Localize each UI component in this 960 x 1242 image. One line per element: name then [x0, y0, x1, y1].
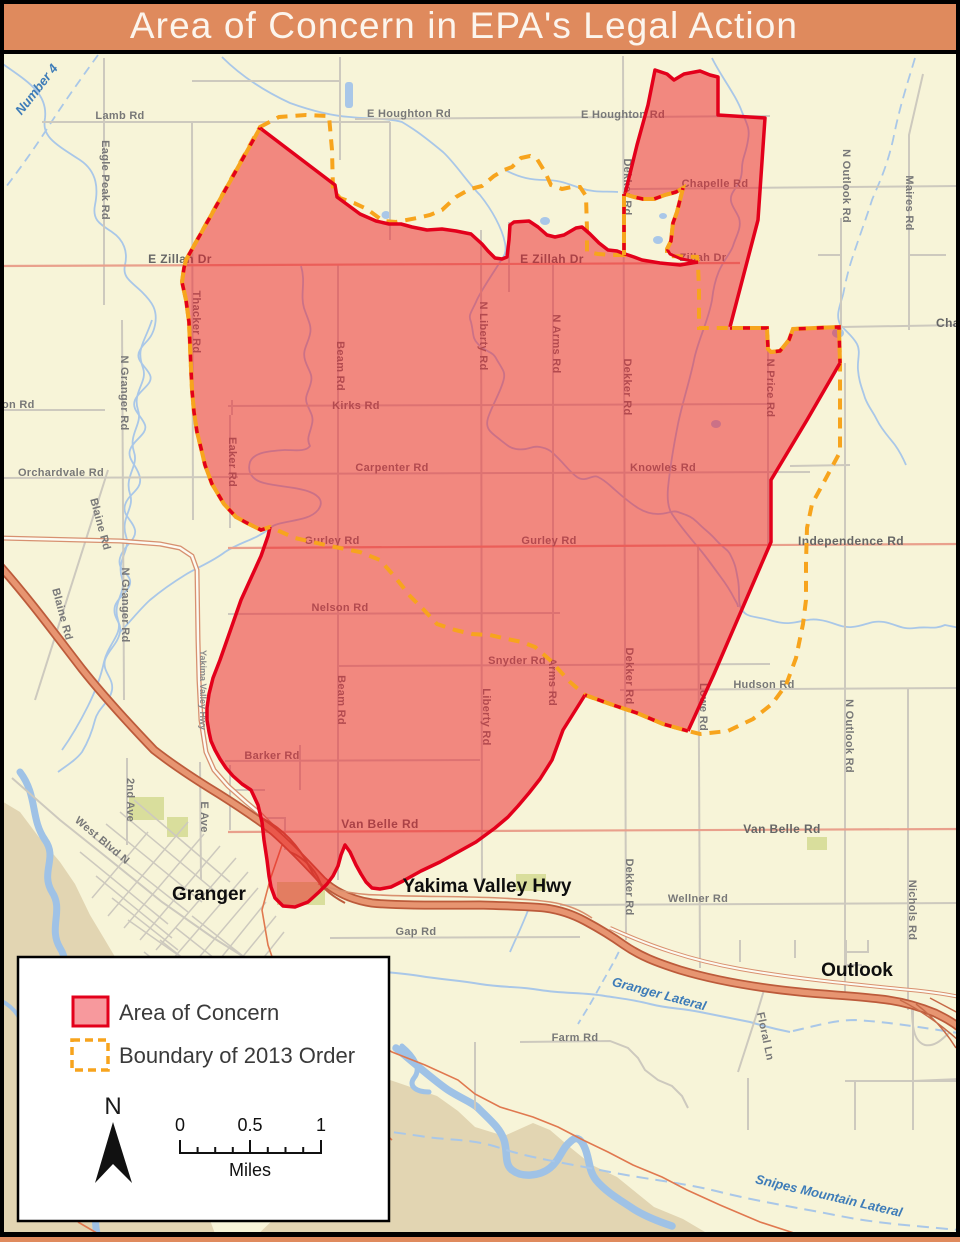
svg-text:on Rd: on Rd — [2, 399, 35, 411]
svg-text:Boundary of 2013 Order: Boundary of 2013 Order — [119, 1043, 355, 1068]
svg-text:Farm Rd: Farm Rd — [552, 1032, 599, 1044]
svg-text:Outlook: Outlook — [821, 960, 893, 981]
svg-text:N Outlook Rd: N Outlook Rd — [840, 149, 852, 223]
svg-text:Nichols Rd: Nichols Rd — [906, 880, 918, 940]
svg-text:2nd Ave: 2nd Ave — [124, 778, 136, 822]
svg-text:E Ave: E Ave — [198, 801, 210, 832]
svg-text:Maires Rd: Maires Rd — [903, 175, 915, 230]
svg-text:Area of Concern: Area of Concern — [119, 1000, 279, 1025]
svg-text:0: 0 — [175, 1115, 185, 1135]
svg-text:1: 1 — [316, 1115, 326, 1135]
svg-text:Orchardvale Rd: Orchardvale Rd — [18, 467, 104, 479]
svg-text:Van Belle Rd: Van Belle Rd — [743, 822, 821, 836]
svg-text:0.5: 0.5 — [237, 1115, 262, 1135]
svg-text:Eagle Peak Rd: Eagle Peak Rd — [99, 140, 111, 220]
svg-text:Wellner Rd: Wellner Rd — [668, 893, 728, 905]
svg-text:Dekker Rd: Dekker Rd — [623, 858, 635, 915]
svg-text:N Outlook Rd: N Outlook Rd — [843, 699, 855, 773]
svg-text:E Houghton Rd: E Houghton Rd — [367, 108, 451, 120]
svg-text:Granger: Granger — [172, 884, 247, 905]
svg-text:Independence Rd: Independence Rd — [798, 534, 904, 548]
svg-text:Area of Concern in EPA's Legal: Area of Concern in EPA's Legal Action — [130, 5, 798, 46]
svg-text:Lamb Rd: Lamb Rd — [95, 110, 144, 122]
svg-text:N Granger Rd: N Granger Rd — [119, 567, 131, 642]
svg-text:Miles: Miles — [229, 1160, 271, 1180]
svg-text:N: N — [104, 1093, 121, 1120]
svg-text:Gap Rd: Gap Rd — [396, 926, 437, 938]
svg-text:Yakima Valley Hwy: Yakima Valley Hwy — [402, 876, 571, 897]
svg-text:N Granger Rd: N Granger Rd — [118, 355, 130, 430]
